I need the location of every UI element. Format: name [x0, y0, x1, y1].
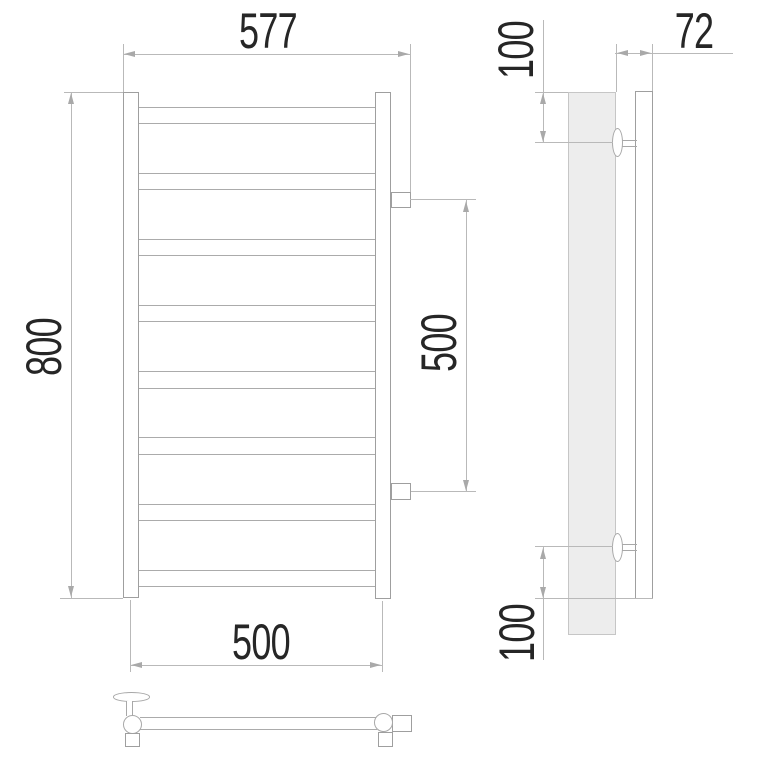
dim-arrow — [463, 201, 469, 212]
left-foot — [125, 733, 141, 747]
side-rail-profile — [635, 91, 653, 599]
left-rail — [123, 92, 139, 598]
wall-panel — [568, 92, 617, 635]
right-connector-section — [392, 715, 412, 732]
dim-arrow — [131, 662, 142, 668]
rung-2 — [138, 173, 375, 191]
lower-bracket-screw — [620, 550, 637, 551]
right-rail-section — [374, 713, 393, 732]
dim-arrow — [463, 480, 469, 491]
dim-arrow — [640, 50, 651, 56]
dim-front-height-label: 800 — [19, 318, 69, 376]
dim-arrow — [68, 93, 74, 104]
right-rail — [375, 92, 392, 599]
dim-ext-line — [60, 598, 123, 599]
dim-ext-line — [382, 601, 383, 672]
dim-arrow — [540, 131, 546, 142]
dim-ext-line — [535, 598, 653, 599]
dim-ext-line — [535, 142, 613, 143]
dim-side-depth-label: 72 — [675, 6, 714, 56]
rung-5 — [138, 371, 375, 389]
dim-arrow — [617, 50, 628, 56]
dim-arrow — [540, 548, 546, 559]
dim-arrow — [68, 586, 74, 597]
left-rail-section — [123, 715, 142, 734]
bracket-stem — [126, 701, 134, 717]
rung-7 — [138, 504, 375, 522]
lower-connector — [391, 483, 411, 500]
upper-bracket-screw — [620, 146, 637, 147]
lower-wall-bracket — [612, 533, 623, 562]
rung-1 — [138, 107, 375, 125]
dim-mount-spacing-label: 500 — [232, 617, 290, 667]
dim-side-top-offset-label: 100 — [491, 21, 541, 79]
dim-side-bottom-offset-label: 100 — [492, 604, 542, 662]
dim-arrow — [124, 51, 135, 57]
rung-8 — [138, 570, 375, 588]
drawing-canvas: 577 800 500 500 — [0, 0, 762, 762]
upper-bracket-screw — [620, 140, 637, 141]
dim-arrow — [370, 662, 381, 668]
dim-arrow — [398, 51, 409, 57]
dim-front-width-label: 577 — [239, 6, 297, 56]
dim-arrow — [540, 93, 546, 104]
dim-connection-spacing-label: 500 — [414, 314, 464, 372]
dim-ext-line — [535, 546, 613, 547]
rung-6 — [138, 437, 375, 455]
dim-ext-line — [652, 44, 653, 91]
rung-4 — [138, 305, 375, 323]
dim-ext-line — [410, 44, 411, 192]
bottom-tube — [140, 717, 377, 730]
upper-wall-bracket — [612, 128, 623, 157]
upper-connector — [391, 192, 411, 208]
lower-bracket-screw — [620, 544, 637, 545]
rung-3 — [138, 239, 375, 257]
dim-arrow — [540, 587, 546, 598]
right-foot — [378, 732, 394, 747]
